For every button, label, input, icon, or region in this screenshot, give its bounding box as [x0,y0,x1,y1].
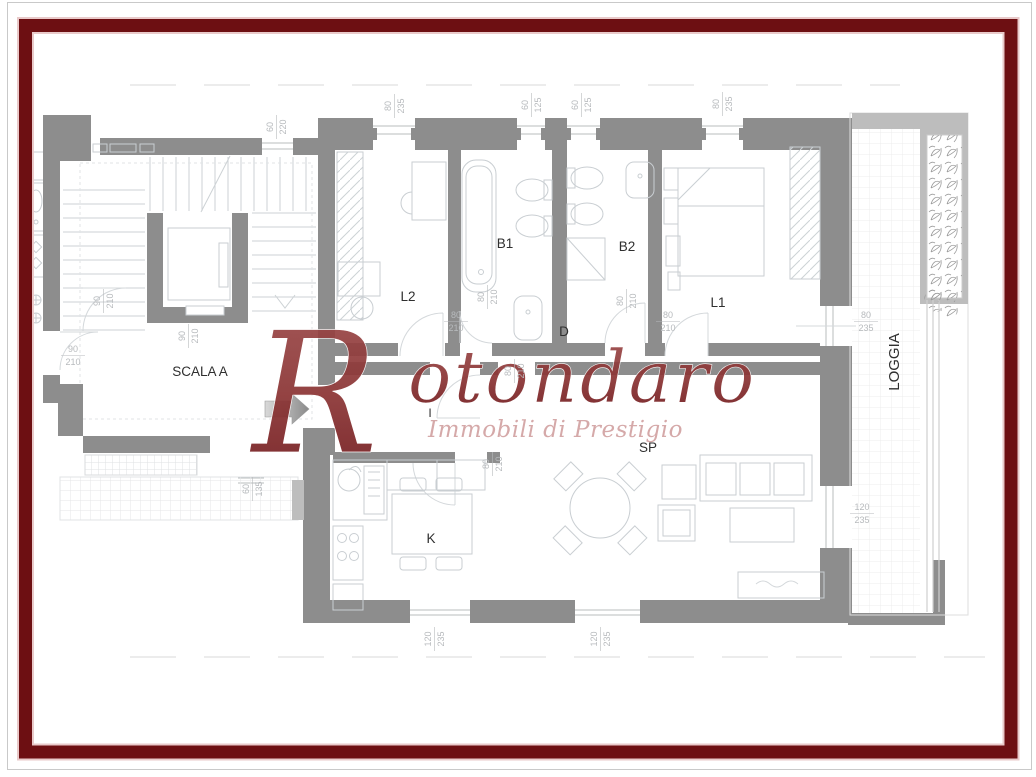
svg-text:80: 80 [503,366,513,376]
svg-text:235: 235 [396,98,406,113]
floorplan-page: R otondaro Immobili di Prestigio SCALA A… [0,0,1036,777]
svg-text:220: 220 [278,119,288,134]
svg-text:80: 80 [615,296,625,306]
svg-text:60: 60 [241,484,251,494]
room-label-d: D [559,324,569,339]
planter-plants [927,135,962,298]
svg-text:80: 80 [663,310,673,320]
svg-text:90: 90 [177,331,187,341]
svg-text:235: 235 [858,323,873,333]
room-label-sp: SP [639,440,657,455]
svg-text:60: 60 [570,100,580,110]
room-label-loggia: LOGGIA [886,333,903,391]
svg-text:60: 60 [265,122,275,132]
room-label-b1: B1 [497,236,514,251]
svg-text:135: 135 [254,481,264,496]
brand-wordmark-initial: R [249,296,379,492]
elevator [147,213,248,323]
room-label-k: K [426,531,435,546]
svg-text:235: 235 [602,631,612,646]
svg-text:90: 90 [68,344,78,354]
svg-text:80: 80 [711,99,721,109]
svg-text:210: 210 [516,363,526,378]
svg-text:210: 210 [660,323,675,333]
svg-text:90: 90 [92,296,102,306]
room-label-l2: L2 [400,289,415,304]
svg-text:125: 125 [583,97,593,112]
svg-text:120: 120 [589,631,599,646]
svg-text:125: 125 [533,97,543,112]
svg-text:235: 235 [436,631,446,646]
svg-text:80: 80 [861,310,871,320]
svg-text:210: 210 [448,323,463,333]
room-label-b2: B2 [619,239,636,254]
room-label-scala-a: SCALA A [172,364,228,379]
svg-text:60: 60 [520,100,530,110]
room-label-i: I [428,406,431,420]
svg-text:80: 80 [383,101,393,111]
svg-text:210: 210 [489,289,499,304]
svg-text:80: 80 [481,459,491,469]
svg-text:235: 235 [724,96,734,111]
room-label-l1: L1 [710,295,725,310]
svg-text:210: 210 [190,328,200,343]
svg-text:210: 210 [494,456,504,471]
svg-text:210: 210 [65,357,80,367]
svg-text:235: 235 [854,515,869,525]
svg-text:80: 80 [476,292,486,302]
svg-text:120: 120 [854,502,869,512]
svg-text:120: 120 [423,631,433,646]
brand-wordmark-rest: otondaro [408,335,757,419]
floorplan-image: R otondaro Immobili di Prestigio SCALA A… [0,0,1036,777]
svg-text:80: 80 [451,310,461,320]
svg-text:210: 210 [628,293,638,308]
svg-text:210: 210 [105,293,115,308]
